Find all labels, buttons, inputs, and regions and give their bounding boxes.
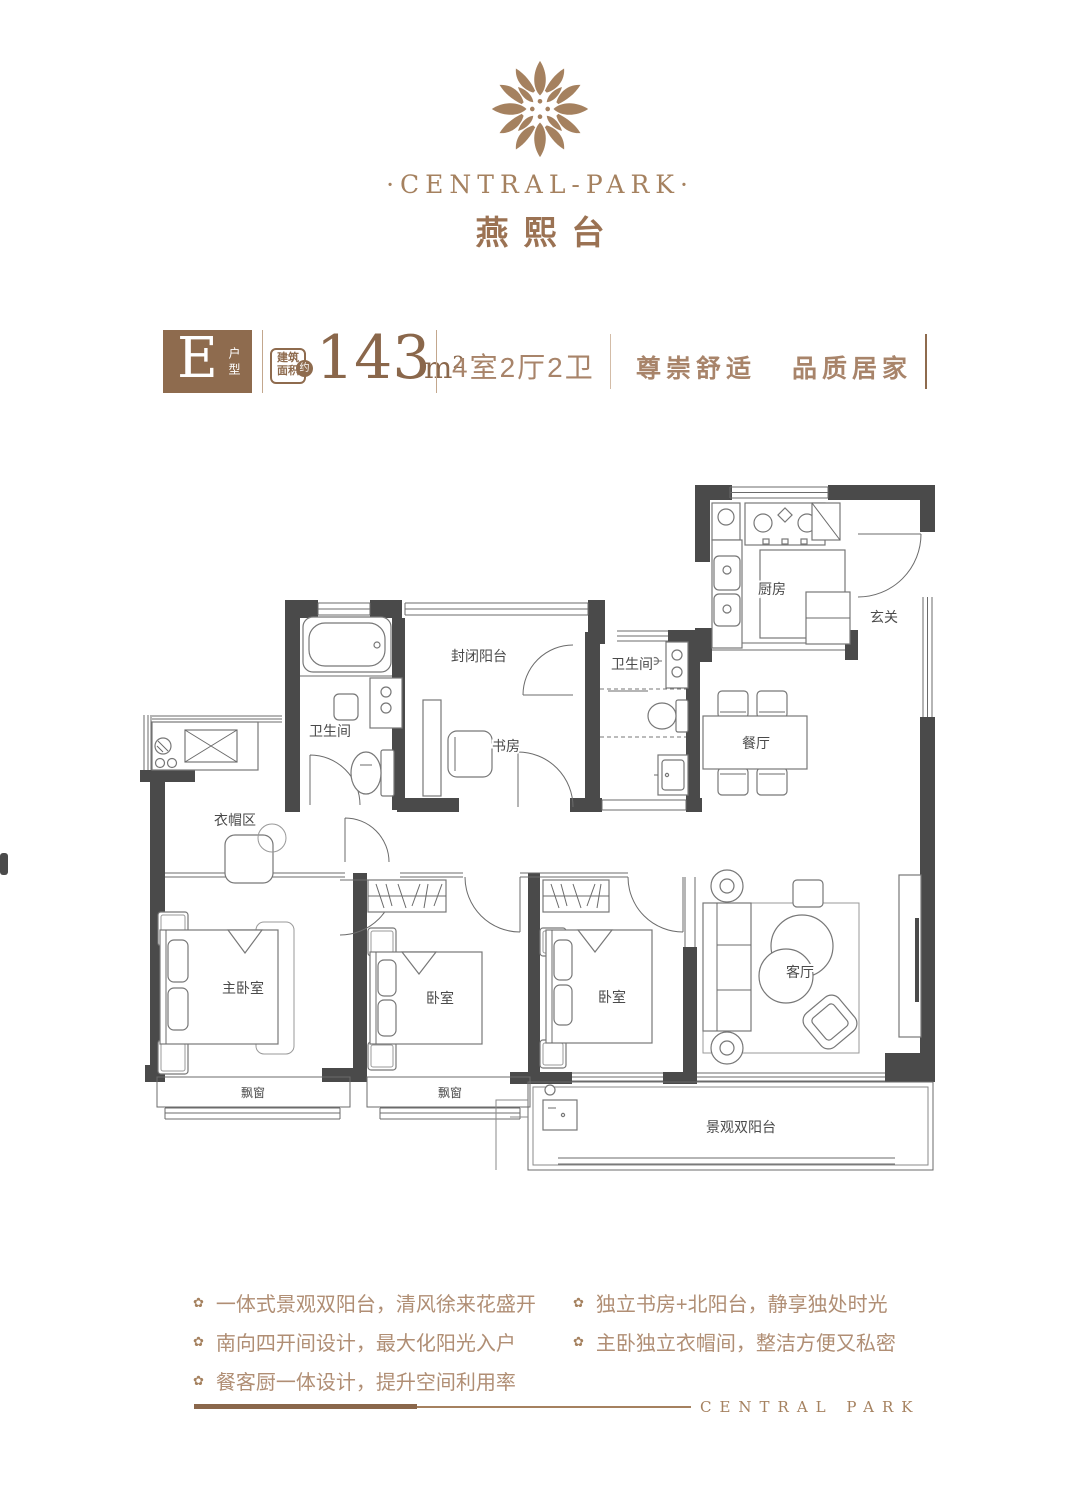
feature-text: 独立书房+北阳台，静享独处时光: [596, 1288, 888, 1317]
floor-plan: 厨房 玄关 卫生间 卫生间 封闭阳台 书房 餐厅 衣帽区 主卧室 卧室 卧室 客…: [0, 0, 1080, 1511]
room-label-bath-b: 卫生间: [611, 656, 653, 672]
feature-text: 餐客厨一体设计，提升空间利用率: [216, 1366, 516, 1395]
feature-item: ✿ 独立书房+北阳台，静享独处时光: [573, 1283, 896, 1322]
flower-bullet-icon: ✿: [193, 1334, 204, 1350]
room-label-entry: 玄关: [870, 609, 898, 625]
feature-text: 南向四开间设计，最大化阳光入户: [216, 1327, 516, 1356]
room-label-study: 书房: [492, 738, 520, 754]
bath2-furniture: [648, 642, 688, 795]
feature-list-left: ✿ 一体式景观双阳台，清风徐来花盛开 ✿ 南向四开间设计，最大化阳光入户 ✿ 餐…: [193, 1283, 536, 1400]
flower-bullet-icon: ✿: [193, 1295, 204, 1311]
feature-list-right: ✿ 独立书房+北阳台，静享独处时光 ✿ 主卧独立衣帽间，整洁方便又私密: [573, 1283, 896, 1361]
room-label-living: 客厅: [786, 964, 814, 980]
utility-furniture: [152, 722, 258, 770]
room-label-cloakroom: 衣帽区: [214, 812, 256, 828]
room-label-bay-window-2: 飘窗: [438, 1086, 462, 1100]
footer-brand-text: CENTRAL PARK: [700, 1398, 920, 1416]
feature-item: ✿ 一体式景观双阳台，清风徐来花盛开: [193, 1283, 536, 1322]
bedroom2-furniture: [540, 880, 652, 1068]
flower-bullet-icon: ✿: [573, 1295, 584, 1311]
room-label-bath-a: 卫生间: [309, 723, 351, 739]
flower-bullet-icon: ✿: [573, 1334, 584, 1350]
room-label-dining: 餐厅: [742, 735, 770, 751]
feature-item: ✿ 南向四开间设计，最大化阳光入户: [193, 1322, 536, 1361]
room-label-bedroom-2: 卧室: [598, 989, 626, 1005]
room-label-bedroom-1: 卧室: [426, 990, 454, 1006]
feature-item: ✿ 餐客厨一体设计，提升空间利用率: [193, 1361, 536, 1400]
room-label-enclosed-balcony: 封闭阳台: [451, 648, 507, 664]
bedroom1-furniture: [368, 880, 482, 1070]
room-label-kitchen: 厨房: [758, 581, 786, 597]
footer-line: [417, 1406, 691, 1408]
room-label-bay-window-1: 飘窗: [241, 1086, 265, 1100]
kitchen-furniture: [712, 503, 850, 648]
bath1-furniture: [300, 617, 402, 796]
feature-text: 一体式景观双阳台，清风徐来花盛开: [216, 1288, 536, 1317]
room-label-view-balcony: 景观双阳台: [706, 1119, 776, 1135]
footer-accent-bar: [194, 1404, 417, 1409]
bay-windows: [157, 1077, 530, 1119]
cloakroom-furniture: [225, 824, 286, 883]
feature-text: 主卧独立衣帽间，整洁方便又私密: [596, 1327, 896, 1356]
feature-item: ✿ 主卧独立衣帽间，整洁方便又私密: [573, 1322, 896, 1361]
flower-bullet-icon: ✿: [193, 1373, 204, 1389]
study-furniture: [423, 700, 492, 796]
room-label-master-bedroom: 主卧室: [222, 980, 264, 996]
